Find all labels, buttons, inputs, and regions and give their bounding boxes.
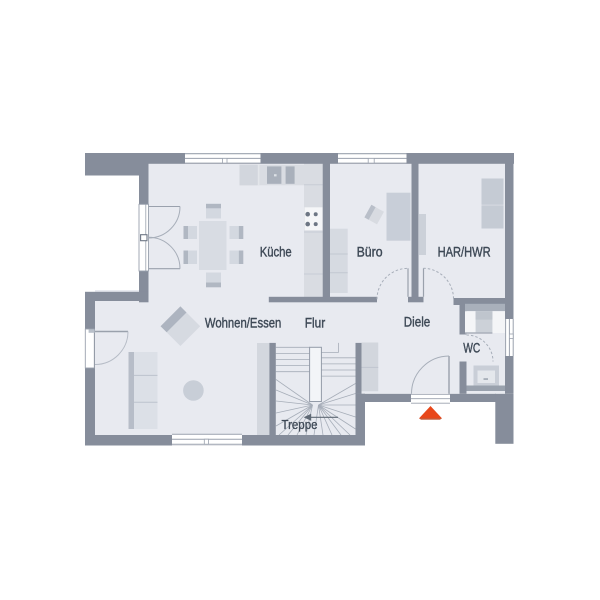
svg-text:Flur: Flur bbox=[305, 315, 326, 331]
svg-text:HAR/HWR: HAR/HWR bbox=[438, 244, 491, 260]
svg-text:Treppe: Treppe bbox=[282, 418, 318, 432]
svg-text:Küche: Küche bbox=[260, 244, 292, 260]
svg-text:Büro: Büro bbox=[357, 244, 383, 260]
svg-text:WC: WC bbox=[463, 340, 480, 355]
svg-text:Wohnen/Essen: Wohnen/Essen bbox=[205, 315, 282, 331]
svg-text:Diele: Diele bbox=[404, 314, 431, 330]
